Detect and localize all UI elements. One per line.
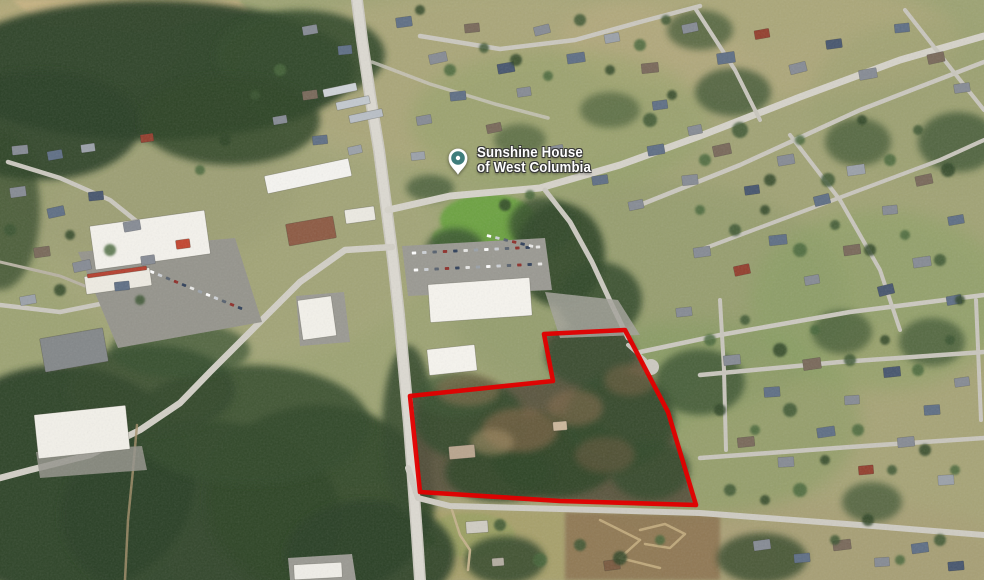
place-label-line2: of West Columbia [477,160,591,175]
pin-center-dot [456,156,460,160]
place-pin-icon[interactable] [447,147,469,176]
aerial-imagery [0,0,984,580]
place-label-line1: Sunshine House [477,145,591,160]
place-label[interactable]: Sunshine House of West Columbia [477,145,591,175]
aerial-map-view[interactable]: Sunshine House of West Columbia [0,0,984,580]
